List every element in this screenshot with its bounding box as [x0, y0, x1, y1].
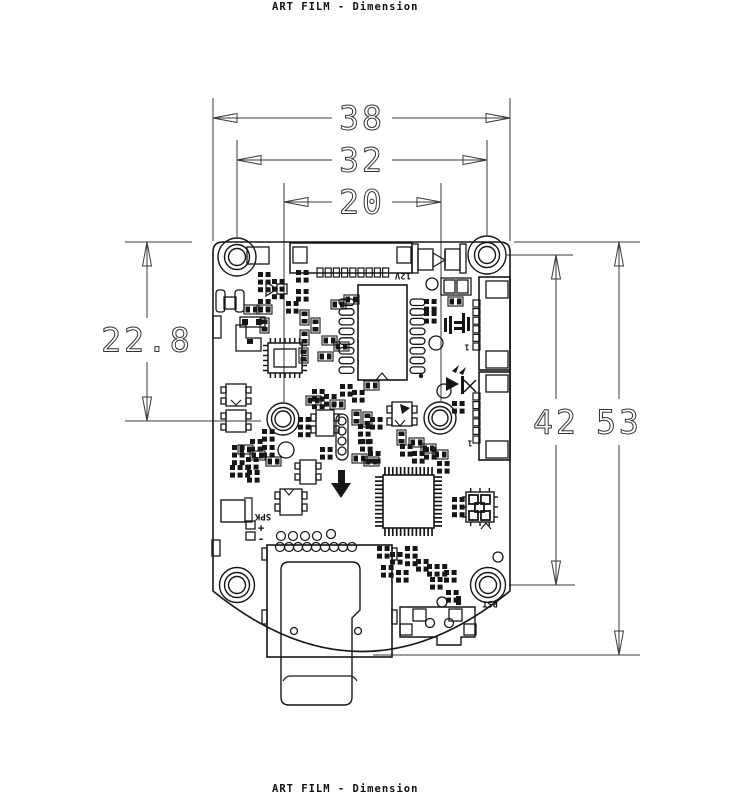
svg-text:12V: 12V — [394, 270, 411, 280]
svg-text:22.8: 22.8 — [101, 321, 192, 360]
dimension-drawing-page: ART FILM - Dimension 38322022.8425312VSP… — [0, 0, 741, 806]
drawing-title-bottom: ART FILM - Dimension — [272, 783, 418, 795]
svg-text:20: 20 — [339, 183, 385, 222]
svg-text:-: - — [258, 533, 265, 546]
svg-text:SPK: SPK — [254, 511, 271, 521]
svg-text:32: 32 — [339, 141, 385, 180]
svg-text:RST: RST — [482, 598, 497, 608]
svg-text:42: 42 — [533, 403, 579, 442]
svg-text:1: 1 — [467, 439, 472, 448]
svg-text:1: 1 — [464, 343, 469, 352]
svg-text:38: 38 — [339, 99, 385, 138]
pcb-dimension-drawing: 38322022.8425312VSPKRST11+- — [0, 0, 741, 806]
svg-text:53: 53 — [596, 403, 642, 442]
